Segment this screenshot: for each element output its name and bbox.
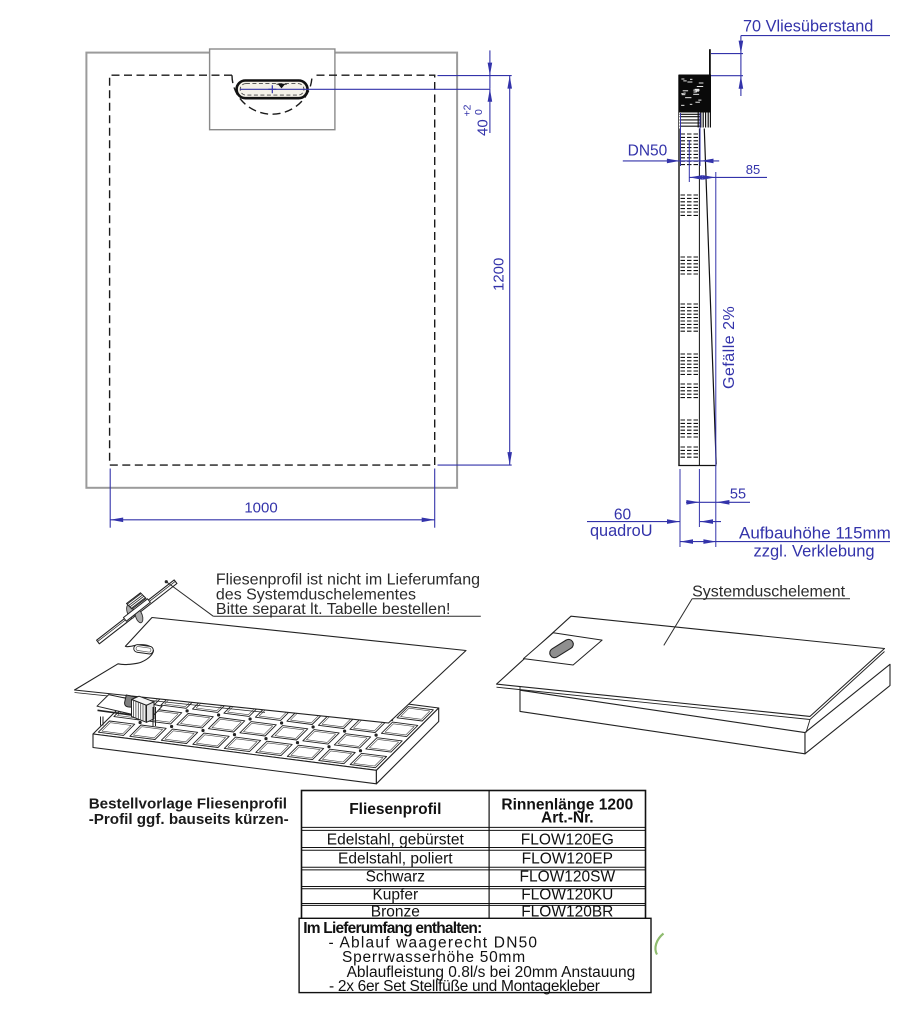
svg-text:Bitte separat lt. Tabelle best: Bitte separat lt. Tabelle bestellen! [216, 601, 451, 618]
svg-text:Bestellvorlage Fliesenprofil: Bestellvorlage Fliesenprofil [89, 796, 287, 813]
svg-text:Gefälle 2%: Gefälle 2% [721, 306, 738, 389]
svg-text:FLOW120KU: FLOW120KU [521, 887, 613, 904]
svg-text:Aufbauhöhe 115mm: Aufbauhöhe 115mm [739, 524, 891, 543]
svg-text:FLOW120EG: FLOW120EG [521, 832, 614, 849]
svg-text:quadroU: quadroU [590, 522, 652, 540]
svg-text:DN50: DN50 [628, 143, 668, 160]
svg-text:Edelstahl, poliert: Edelstahl, poliert [338, 850, 453, 867]
svg-text:60: 60 [614, 507, 632, 524]
svg-text:Schwarz: Schwarz [366, 869, 425, 886]
svg-text:70 Vliesüberstand: 70 Vliesüberstand [743, 18, 873, 36]
svg-text:Systemduschelement: Systemduschelement [692, 584, 846, 601]
svg-text:1000: 1000 [244, 500, 277, 517]
svg-text:FLOW120EP: FLOW120EP [522, 850, 613, 867]
svg-text:55: 55 [730, 487, 746, 503]
svg-text:+2: +2 [462, 104, 474, 116]
svg-text:-Profil ggf. bauseits kürzen-: -Profil ggf. bauseits kürzen- [89, 811, 289, 828]
svg-text:Edelstahl, gebürstet: Edelstahl, gebürstet [327, 832, 465, 849]
svg-text:- 2x 6er Set Stellfüße und Mon: - 2x 6er Set Stellfüße und Montagekleber [329, 978, 600, 995]
svg-text:zzgl. Verklebung: zzgl. Verklebung [754, 543, 875, 561]
svg-text:85: 85 [746, 162, 760, 177]
svg-text:Kupfer: Kupfer [372, 887, 418, 904]
svg-text:Fliesenprofil: Fliesenprofil [349, 801, 441, 818]
svg-text:FLOW120SW: FLOW120SW [519, 869, 615, 886]
svg-text:40: 40 [475, 119, 492, 136]
svg-text:0: 0 [473, 109, 485, 115]
svg-text:Art.-Nr.: Art.-Nr. [541, 810, 594, 827]
svg-text:1200: 1200 [491, 258, 508, 291]
